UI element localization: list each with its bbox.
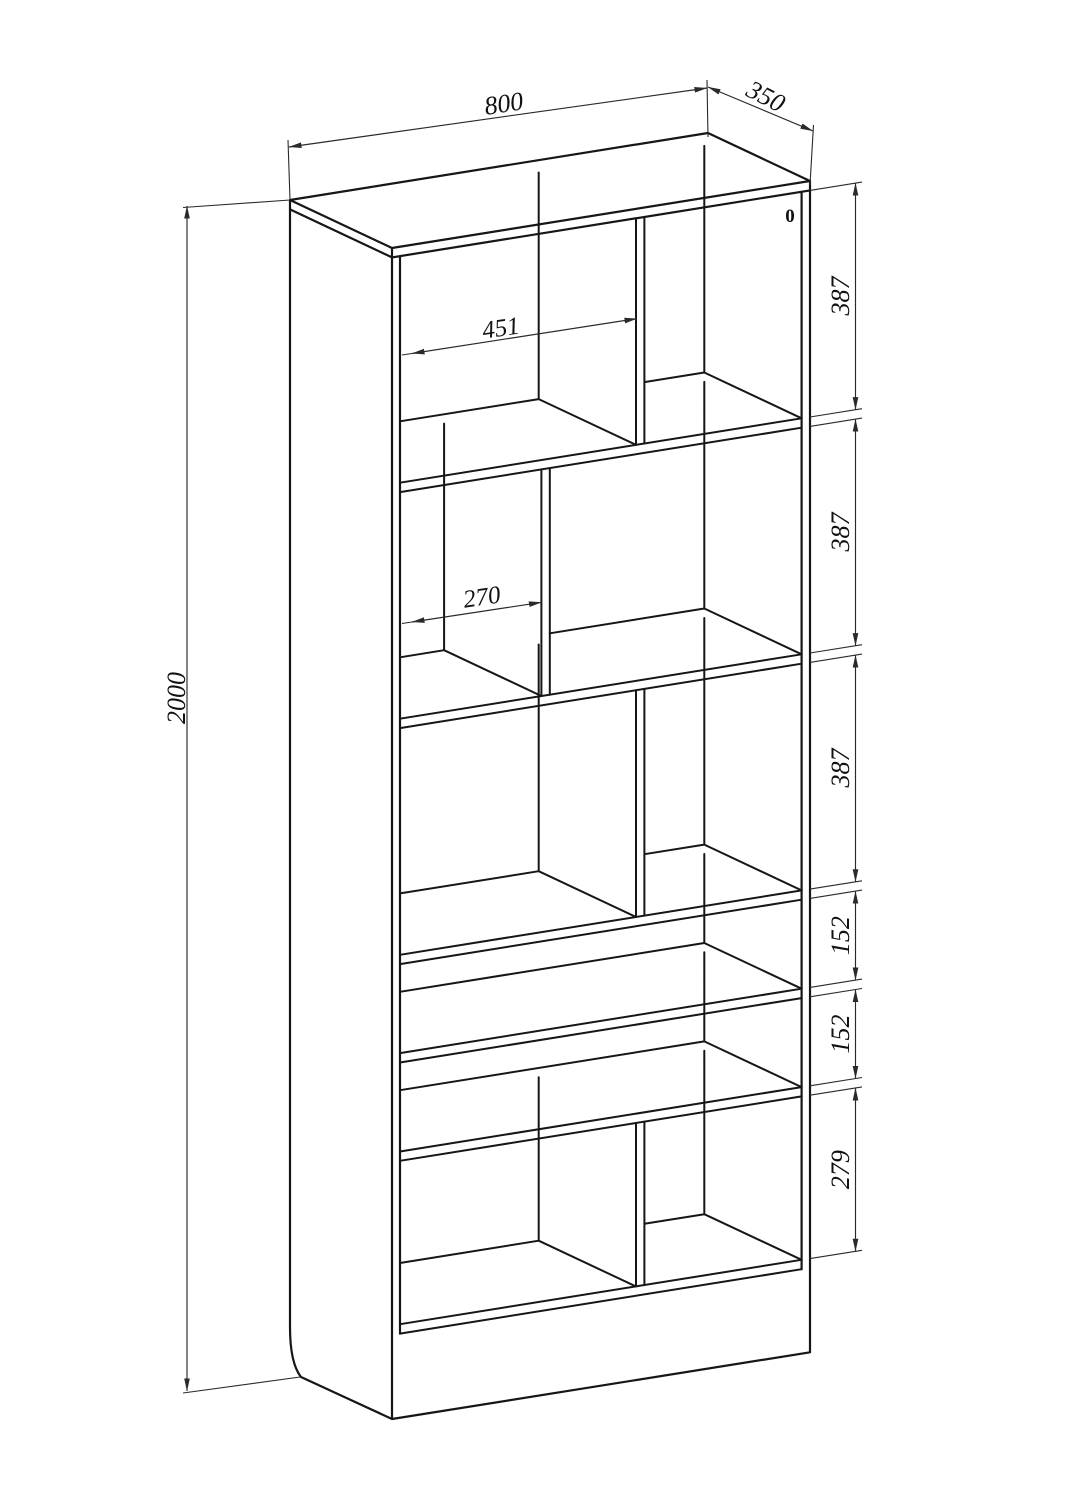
label-row3-387: 387 bbox=[826, 748, 855, 789]
label-row6-279: 279 bbox=[826, 1150, 855, 1189]
corner-hole-marker: 0 bbox=[785, 206, 795, 227]
vertical-dividers bbox=[444, 173, 644, 1287]
label-depth-350: 350 bbox=[741, 74, 790, 118]
shelf-front-edges bbox=[400, 418, 802, 1333]
label-row1-387: 387 bbox=[826, 276, 855, 317]
dimension-lines bbox=[187, 87, 856, 1391]
label-width-800: 800 bbox=[482, 86, 525, 120]
dimension-labels: 800 350 2000 387 387 387 152 152 279 451… bbox=[162, 74, 855, 1189]
label-inner-451: 451 bbox=[480, 312, 521, 344]
bookshelf-dimension-drawing: 800 350 2000 387 387 387 152 152 279 451… bbox=[0, 0, 1078, 1500]
label-height-2000: 2000 bbox=[162, 672, 191, 724]
compartment-interior-edges bbox=[400, 146, 802, 1263]
label-inner-270: 270 bbox=[461, 581, 503, 613]
label-row2-387: 387 bbox=[826, 512, 855, 553]
label-row4-152: 152 bbox=[826, 916, 855, 955]
drawing-canvas: 800 350 2000 387 387 387 152 152 279 451… bbox=[0, 0, 1078, 1500]
label-row5-152: 152 bbox=[826, 1015, 855, 1054]
extension-lines bbox=[183, 80, 862, 1393]
dim-line-451 bbox=[412, 319, 637, 354]
